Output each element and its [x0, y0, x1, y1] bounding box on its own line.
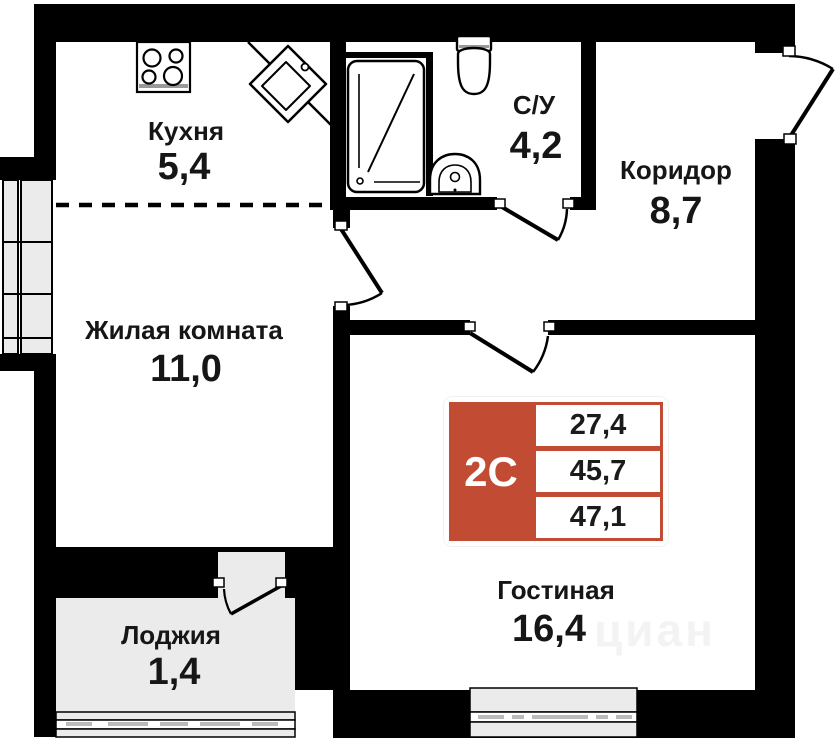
lounge-area: 16,4 — [512, 610, 586, 648]
window-frame — [470, 722, 637, 737]
door-hinge — [544, 322, 555, 331]
door-leaf — [502, 207, 558, 240]
room-name: Гостиная — [497, 575, 615, 605]
stove-icon — [137, 42, 190, 92]
kitchen-area: 5,4 — [158, 148, 211, 186]
lounge-door — [464, 322, 555, 372]
wall-segment — [34, 4, 795, 42]
loggia-window — [56, 712, 295, 737]
room-area: 1,4 — [148, 651, 201, 693]
door-hinge — [563, 199, 574, 208]
wall-segment — [34, 354, 56, 737]
wall-segment — [285, 547, 350, 598]
window-frame — [3, 180, 18, 354]
loggia-label: Лоджия — [121, 622, 221, 648]
door-hinge — [783, 46, 795, 56]
room-area: 4,2 — [510, 125, 563, 167]
loggia-area-label: 1,4 — [148, 653, 201, 691]
door-leaf — [788, 69, 833, 140]
wall-segment — [330, 42, 346, 210]
entrance-door — [783, 46, 833, 144]
wall-segment — [330, 197, 497, 210]
wall-segment — [548, 320, 757, 335]
apartment-areas-table: 27,4 45,7 47,1 — [533, 402, 663, 541]
bathroom-door — [494, 199, 574, 240]
wall-segment — [333, 320, 470, 335]
bathroom-area: 4,2 — [510, 127, 563, 165]
living-room-area: 11,0 — [150, 350, 222, 388]
window-frame — [56, 712, 295, 720]
living-room-door — [335, 221, 382, 311]
area-value: 45,7 — [536, 451, 660, 492]
room-name: С/У — [513, 90, 555, 120]
wall-segment — [0, 354, 34, 371]
lounge-window — [470, 688, 637, 737]
window-frame — [470, 688, 637, 712]
window-frame — [56, 729, 295, 737]
door-swing-arc — [789, 56, 833, 69]
wall-segment — [345, 52, 433, 58]
door-hinge — [335, 302, 347, 311]
room-area: 8,7 — [650, 190, 703, 232]
wall-segment — [295, 598, 350, 690]
living-room-window — [3, 180, 52, 354]
living-room-label: Жилая комната — [85, 317, 283, 343]
room-name: Коридор — [620, 155, 732, 185]
apartment-type: 2С — [449, 402, 533, 541]
door-leaf — [341, 229, 382, 293]
door-hinge — [335, 221, 347, 230]
watermark: циан — [594, 603, 716, 657]
door-swing-arc — [533, 336, 548, 372]
door-swing-arc — [558, 209, 567, 240]
floor-plan: Кухня 5,4 С/У 4,2 Коридор 8,7 Жилая комн… — [0, 0, 838, 738]
wall-segment — [56, 547, 218, 598]
wall-segment — [0, 157, 34, 180]
room-area: 11,0 — [150, 348, 222, 390]
door-swing-arc — [344, 293, 382, 305]
wall-segment — [755, 139, 795, 738]
toilet-icon — [457, 36, 491, 94]
corridor-label: Коридор — [620, 157, 732, 183]
room-area: 5,4 — [158, 146, 211, 188]
room-name: Лоджия — [121, 620, 221, 650]
door-leaf — [470, 333, 533, 372]
area-value: 47,1 — [536, 497, 660, 538]
corridor-area: 8,7 — [650, 192, 703, 230]
bathroom-label: С/У — [513, 92, 555, 118]
window-frame — [21, 180, 52, 354]
lounge-label: Гостиная — [497, 577, 615, 603]
kitchen-sink-icon — [248, 42, 332, 126]
room-name: Кухня — [148, 116, 224, 146]
door-hinge — [464, 322, 475, 331]
area-value: 27,4 — [536, 405, 660, 446]
door-hinge — [276, 578, 287, 587]
wall-segment — [34, 4, 56, 180]
door-hinge — [784, 134, 796, 144]
door-hinge — [213, 578, 224, 587]
wall-segment — [218, 547, 285, 552]
apartment-info-badge: 2С 27,4 45,7 47,1 — [444, 397, 668, 546]
bathtub-icon — [348, 61, 424, 192]
wall-segment — [581, 42, 596, 197]
room-name: Жилая комната — [85, 315, 283, 345]
washbasin-icon — [430, 154, 480, 194]
door-hinge — [494, 199, 505, 208]
room-area: 16,4 — [512, 608, 586, 650]
kitchen-label: Кухня — [148, 118, 224, 144]
